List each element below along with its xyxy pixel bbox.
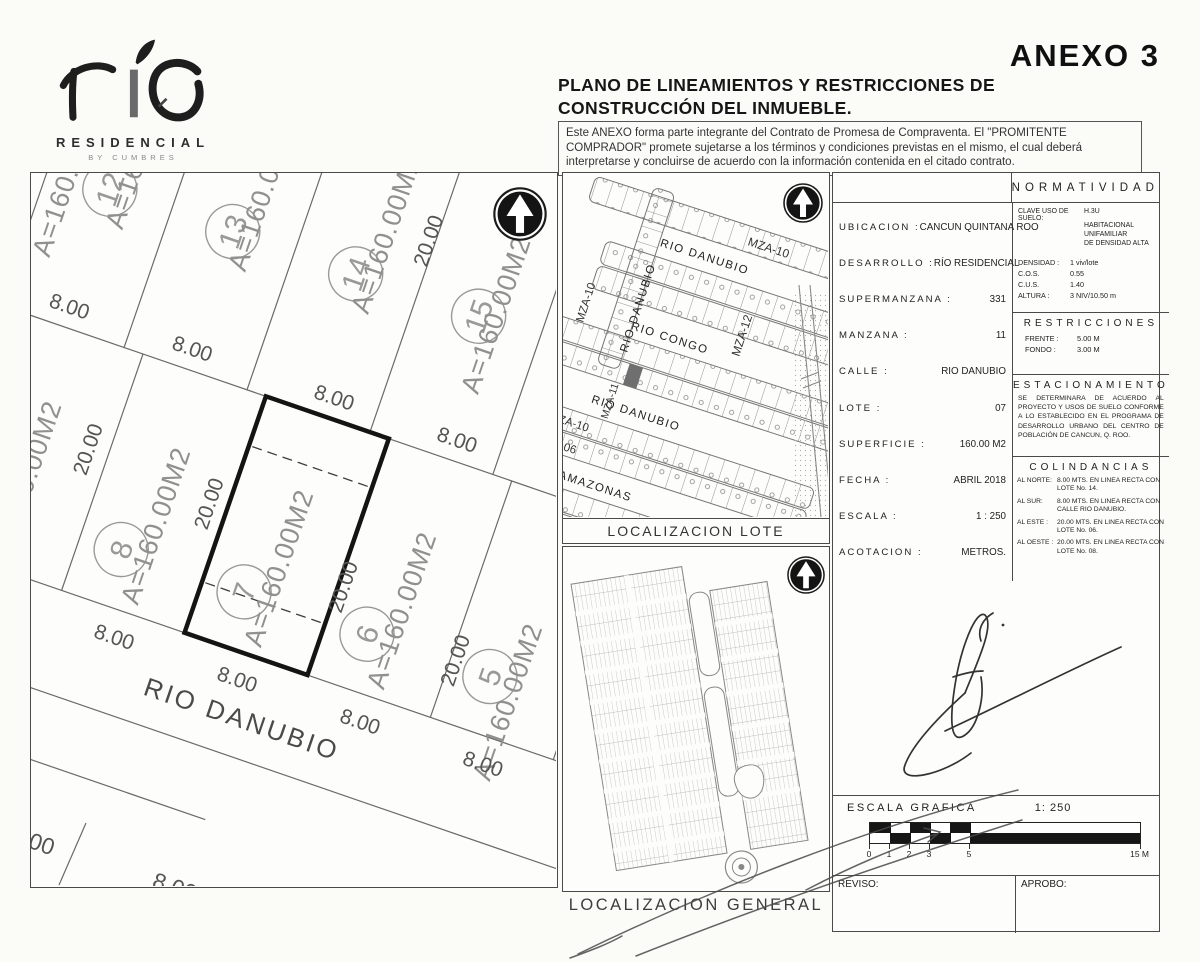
brand-logo: RESIDENCIAL BY CUMBRES <box>38 36 228 162</box>
tick-label: 0 <box>867 849 872 859</box>
field-superficie: SUPERFICIE :160.00 M2 <box>839 439 1006 450</box>
estacionamiento-title: ESTACIONAMIENTO <box>1013 380 1169 391</box>
colindancia-label: AL ESTE : <box>1017 519 1057 536</box>
clave-value: H.3U <box>1084 208 1100 222</box>
area-label: A=160.00M2 <box>361 528 443 693</box>
depth-dim-label: 20.00 <box>69 421 108 478</box>
field-value: 07 <box>995 403 1006 414</box>
front-dim-label: 8.00 <box>311 381 357 416</box>
restr-value: 3.00 M <box>1077 344 1100 355</box>
norm-row-densidad: DENSIDAD :1 viv/lote <box>1018 257 1165 268</box>
edge-dim-labels: 8.00 8.00 <box>31 821 200 886</box>
colindancia-text: 8.00 MTS. EN LINEA RECTA CON LOTE No. 14… <box>1057 477 1166 494</box>
map-general-box <box>562 546 830 892</box>
area-labels: A=160.00M2 A=160.00M2 A=160.00M2 A=160.0… <box>31 173 556 784</box>
estacionamiento-section: ESTACIONAMIENTO SE DETERMINARA DE ACUERD… <box>1013 375 1169 457</box>
tick-label: 1 <box>887 849 892 859</box>
mza-label: MZA-10 <box>574 281 598 324</box>
norm-label: C.U.S. <box>1018 279 1070 290</box>
front-dim-label: 8.00 <box>91 620 137 655</box>
graphic-scale-section: ESCALA GRAFICA 1: 250 0 1 2 3 5 15 M <box>833 796 1159 876</box>
rio-logo-icon <box>58 36 208 128</box>
colindancia-oeste: AL OESTE :20.00 MTS. EN LINEA RECTA CON … <box>1013 539 1169 556</box>
field-acotacion: ACOTACION :METROS. <box>839 547 1006 558</box>
field-value: METROS. <box>961 547 1006 558</box>
colindancia-sur: AL SUR:8.00 MTS. EN LINEA RECTA CON CALL… <box>1013 498 1169 515</box>
site-plan-drawing: 8 7 6 5 12 13 14 15 A=160.00M2 A=160.00M… <box>31 173 556 886</box>
restricciones-title: RESTRICCIONES <box>1013 318 1169 329</box>
field-supermanzana: SUPERMANZANA :331 <box>839 294 1006 305</box>
field-label: ESCALA : <box>839 511 898 522</box>
edge-lot-line <box>59 823 86 885</box>
field-desarrollo: DESARROLLO :RÍO RESIDENCIAL <box>839 258 1006 269</box>
sign-off-row: REVISO: APROBO: <box>833 876 1159 933</box>
field-manzana: MANZANA :11 <box>839 330 1006 341</box>
scale-head: ESCALA GRAFICA 1: 250 <box>847 802 1159 814</box>
colindancia-norte: AL NORTE:8.00 MTS. EN LINEA RECTA CON LO… <box>1013 477 1169 494</box>
depth-dim-label: 20.00 <box>436 632 475 689</box>
dimension-labels: 8.00 8.00 8.00 8.00 8.00 8.00 8.00 8.00 … <box>31 173 556 782</box>
field-label: MANZANA : <box>839 330 909 341</box>
north-arrow-icon <box>784 184 822 222</box>
field-value: 1 : 250 <box>976 511 1006 522</box>
norm-label: DENSIDAD : <box>1018 257 1070 268</box>
field-fecha: FECHA :ABRIL 2018 <box>839 475 1006 486</box>
front-dim-label: 8.00 <box>337 705 383 740</box>
field-ubicacion: UBICACION :CANCUN QUINTANA ROO <box>839 222 1006 233</box>
field-label: SUPERFICIE : <box>839 439 926 450</box>
colindancia-text: 20.00 MTS. EN LINEA RECTA CON LOTE No. 0… <box>1057 539 1166 556</box>
area-label: A=160.00M2 <box>238 486 320 651</box>
tick-label: 2 <box>907 849 912 859</box>
field-calle: CALLE :RIO DANUBIO <box>839 366 1006 377</box>
panel-header-row: NORMATIVIDAD <box>833 173 1159 203</box>
panel-right-column: CLAVE USO DE SUELO: H.3U HABITACIONAL UN… <box>1013 203 1169 581</box>
front-dim-label: 8.00 <box>149 867 200 886</box>
colindancia-text: 20.00 MTS. EN LINEA RECTA CON LOTE No. 0… <box>1057 519 1166 536</box>
field-label: ACOTACION : <box>839 547 923 558</box>
disclaimer-box: Este ANEXO forma parte integrante del Co… <box>558 121 1142 176</box>
colindancia-label: AL NORTE: <box>1017 477 1057 494</box>
lot-numbers: 8 7 6 5 12 13 14 15 <box>31 173 556 690</box>
tick-end-label: 15 M <box>1130 849 1149 859</box>
scale-bar <box>869 822 1141 844</box>
restr-row-frente: FRENTE :5.00 M <box>1025 333 1169 344</box>
colindancias-section: COLINDANCIAS AL NORTE:8.00 MTS. EN LINEA… <box>1013 457 1169 581</box>
norm-value: 1 viv/lote <box>1070 257 1098 268</box>
normatividad-section: CLAVE USO DE SUELO: H.3U HABITACIONAL UN… <box>1013 203 1169 313</box>
field-value: RÍO RESIDENCIAL <box>934 258 1019 269</box>
norm-row-cus: C.U.S.1.40 <box>1018 279 1165 290</box>
field-label: SUPERMANZANA : <box>839 294 952 305</box>
field-label: CALLE : <box>839 366 889 377</box>
restr-label: FONDO : <box>1025 344 1077 355</box>
area-label: A=160.00M2 <box>31 397 68 562</box>
signature-area <box>833 581 1159 796</box>
brand-subtitle: BY CUMBRES <box>38 153 228 162</box>
field-value: 160.00 M2 <box>960 439 1006 450</box>
front-dim-label: 8.00 <box>214 662 260 697</box>
clave-label: CLAVE USO DE SUELO: <box>1018 208 1084 222</box>
document-title-line1: PLANO DE LINEAMIENTOS Y RESTRICCIONES DE <box>558 74 1158 97</box>
field-lote: LOTE :07 <box>839 403 1006 414</box>
north-arrow-icon <box>788 557 824 593</box>
restricciones-section: RESTRICCIONES FRENTE :5.00 M FONDO :3.00… <box>1013 313 1169 375</box>
document-title: PLANO DE LINEAMIENTOS Y RESTRICCIONES DE… <box>558 74 1158 120</box>
document-title-line2: CONSTRUCCIÓN DEL INMUEBLE. <box>558 97 1158 120</box>
map-general-caption: LOCALIZACION GENERAL <box>562 896 830 915</box>
area-label: A=160.00M2 <box>115 443 197 608</box>
site-plan-box: 8 7 6 5 12 13 14 15 A=160.00M2 A=160.00M… <box>30 172 558 888</box>
restricciones-rows: FRENTE :5.00 M FONDO :3.00 M <box>1013 333 1169 355</box>
tick-label: 5 <box>967 849 972 859</box>
map-general-drawing <box>563 547 828 890</box>
restr-row-fondo: FONDO :3.00 M <box>1025 344 1169 355</box>
field-value: 11 <box>996 330 1006 341</box>
norm-label: C.O.S. <box>1018 268 1070 279</box>
norm-value: 3 NIV/10.50 m <box>1070 290 1116 301</box>
reviso-cell: REVISO: <box>833 876 1016 933</box>
tick-label: 3 <box>927 849 932 859</box>
terrain-stipple <box>791 291 828 517</box>
clave-desc-2: DE DENSIDAD ALTA <box>1084 240 1165 249</box>
site-plan-grid: 8 7 6 5 12 13 14 15 A=160.00M2 A=160.00M… <box>31 173 556 886</box>
panel-body: UBICACION :CANCUN QUINTANA ROO DESARROLL… <box>833 203 1159 581</box>
norm-row-altura: ALTURA :3 NIV/10.50 m <box>1018 290 1165 301</box>
map-lote-caption: LOCALIZACION LOTE <box>563 518 829 543</box>
aprobo-cell: APROBO: <box>1016 876 1159 933</box>
restr-label: FRENTE : <box>1025 333 1077 344</box>
normatividad-rows: DENSIDAD :1 viv/lote C.O.S.0.55 C.U.S.1.… <box>1018 257 1165 302</box>
clave-desc-1: HABITACIONAL UNIFAMILIAR <box>1084 222 1165 240</box>
colindancia-este: AL ESTE :20.00 MTS. EN LINEA RECTA CON L… <box>1013 519 1169 536</box>
field-value: 331 <box>990 294 1006 305</box>
colindancia-label: AL OESTE : <box>1017 539 1057 556</box>
colindancia-text: 8.00 MTS. EN LINEA RECTA CON CALLE RIO D… <box>1057 498 1166 515</box>
depth-dim-label: 20.00 <box>324 558 363 615</box>
norm-label: ALTURA : <box>1018 290 1070 301</box>
field-escala: ESCALA :1 : 250 <box>839 511 1006 522</box>
north-arrow-icon <box>494 188 545 239</box>
colindancias-title: COLINDANCIAS <box>1013 462 1169 473</box>
norm-value: 0.55 <box>1070 268 1084 279</box>
brand-name: RESIDENCIAL <box>38 135 228 150</box>
field-list: UBICACION :CANCUN QUINTANA ROO DESARROLL… <box>833 203 1013 581</box>
field-label: LOTE : <box>839 403 881 414</box>
depth-dim-label: 20.00 <box>409 212 448 269</box>
annex-title: ANEXO 3 <box>900 38 1160 74</box>
front-dim-label: 8.00 <box>434 423 480 458</box>
norm-row-cos: C.O.S.0.55 <box>1018 268 1165 279</box>
field-value: ABRIL 2018 <box>954 475 1006 486</box>
field-value: RIO DANUBIO <box>941 366 1006 377</box>
normatividad-title: NORMATIVIDAD <box>1012 173 1159 202</box>
colindancia-label: AL SUR: <box>1017 498 1057 515</box>
restr-value: 5.00 M <box>1077 333 1100 344</box>
map-lote-drawing: MZA-10 RIO DANUBIO MZA-12 RIO CONGO MZA-… <box>563 173 828 517</box>
scale-ticks: 0 1 2 3 5 15 M <box>869 844 1141 860</box>
field-label: UBICACION : <box>839 222 920 233</box>
estacionamiento-text: SE DETERMINARA DE ACUERDO AL PROYECTO Y … <box>1013 391 1169 440</box>
front-dim-label: 8.00 <box>46 289 92 324</box>
front-dim-label: 8.00 <box>169 332 215 367</box>
map-lote-box: MZA-10 RIO DANUBIO MZA-12 RIO CONGO MZA-… <box>562 172 830 544</box>
front-dim-label: 8.00 <box>31 821 58 860</box>
field-label: DESARROLLO : <box>839 258 934 269</box>
field-label: FECHA : <box>839 475 890 486</box>
masterplan <box>571 552 824 890</box>
clave-uso-suelo: CLAVE USO DE SUELO: H.3U <box>1018 208 1165 222</box>
access-road <box>774 847 824 889</box>
info-panel: NORMATIVIDAD UBICACION :CANCUN QUINTANA … <box>832 172 1160 932</box>
panel-header-empty <box>833 173 1012 202</box>
signature-scribble <box>833 581 1159 794</box>
scale-label: ESCALA GRAFICA <box>847 802 977 814</box>
scale-ratio: 1: 250 <box>1035 802 1072 814</box>
norm-value: 1.40 <box>1070 279 1084 290</box>
